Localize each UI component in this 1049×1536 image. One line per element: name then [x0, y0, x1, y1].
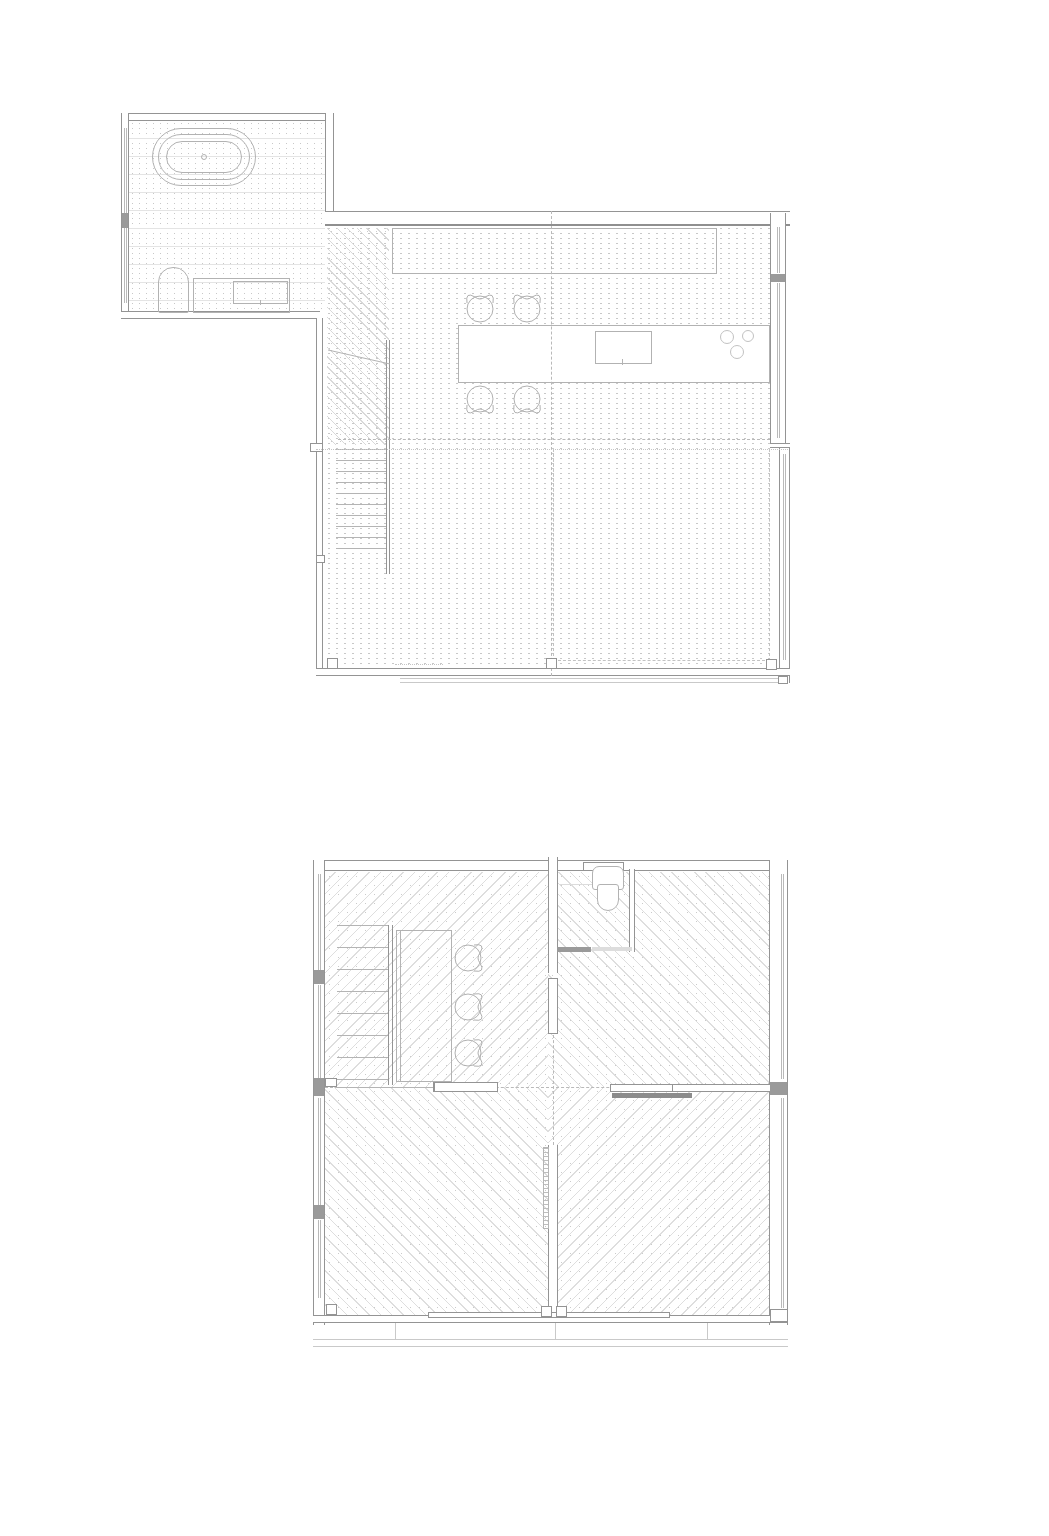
toilet-bowl — [597, 884, 619, 911]
floor-joint-dotted-line — [316, 449, 788, 450]
wall-wc-right — [629, 869, 635, 952]
stair-tread — [337, 925, 388, 926]
sliding-panel-shaded — [612, 1093, 692, 1098]
wall-mullion-left — [316, 555, 325, 563]
window-mullion — [314, 1205, 324, 1219]
stool-icon — [452, 989, 488, 1025]
stair-rail — [386, 340, 390, 574]
stair-tread — [337, 969, 388, 970]
stair-tread — [337, 991, 388, 992]
stool — [509, 383, 545, 419]
drawing-sheet — [0, 0, 1049, 1536]
stair-tread — [337, 1013, 388, 1014]
toilet — [158, 267, 189, 313]
stool — [462, 383, 498, 419]
sink-bowl — [720, 330, 734, 344]
stair-tread — [336, 504, 386, 505]
desk-edge-line — [400, 931, 401, 1081]
stair-tread — [336, 460, 386, 461]
wall-right-glazed — [769, 860, 788, 1325]
window-glazing — [777, 227, 780, 273]
window-mullion — [314, 1078, 324, 1096]
stair-tread — [337, 1057, 388, 1058]
deck-post — [555, 1323, 556, 1339]
kitchen-wall-counter — [392, 228, 717, 274]
stair-tread — [336, 537, 386, 538]
wc-door-threshold — [592, 947, 632, 951]
wall-partition-lower — [548, 1145, 558, 1315]
wall-bathroom-right — [325, 113, 334, 213]
stair-void-hatch — [327, 228, 389, 445]
column — [541, 1306, 552, 1317]
stair-tread — [336, 526, 386, 527]
wall-partition-upper — [548, 857, 558, 973]
wall-left-glazed — [313, 860, 325, 1325]
deck-edge — [313, 1339, 788, 1347]
column — [326, 1304, 337, 1315]
wall-corner-step — [770, 1309, 788, 1322]
sill-end-cap — [778, 676, 788, 684]
stair-tread — [337, 1079, 388, 1080]
window-glazing — [318, 874, 321, 970]
wall-right-upper-glazed — [770, 213, 786, 445]
stair-tread — [337, 1035, 388, 1036]
wall-main-bottom — [316, 668, 790, 676]
column — [766, 659, 777, 670]
window-glazing — [318, 1220, 321, 1298]
column — [556, 1306, 567, 1317]
stool — [509, 289, 545, 325]
floor-upper-right — [548, 872, 769, 1087]
stool-icon — [509, 289, 545, 325]
threshold-dotted-line — [395, 664, 443, 665]
stool-icon — [462, 383, 498, 419]
stair-tread — [337, 947, 388, 948]
window-glazing — [777, 283, 780, 438]
wc-shelf-line — [560, 884, 592, 885]
wall-bracket-left — [325, 1078, 337, 1087]
window-glazing — [783, 454, 786, 660]
stool-icon — [509, 383, 545, 419]
overhead-dash-line — [338, 439, 770, 440]
window-glazing — [781, 1098, 784, 1308]
stair-tread — [336, 471, 386, 472]
stool — [452, 940, 488, 976]
stool — [462, 289, 498, 325]
sliding-panel-right — [610, 1084, 673, 1092]
window-mullion — [122, 213, 128, 228]
stool — [452, 989, 488, 1025]
column — [546, 658, 557, 669]
void-dashed-outline — [553, 449, 770, 661]
deck-post — [395, 1323, 396, 1339]
stair-tread — [336, 515, 386, 516]
column — [327, 658, 338, 669]
window-glazing — [124, 128, 127, 213]
sink-bowl — [730, 345, 744, 359]
wall-bathroom-left-glazed — [121, 113, 129, 318]
wardrobe-desk — [396, 930, 452, 1082]
floor-lower-right — [548, 1087, 769, 1315]
wall-partition-stub — [548, 978, 558, 1034]
stool-icon — [452, 940, 488, 976]
stool — [452, 1035, 488, 1071]
window-sill-line — [400, 678, 788, 683]
cooktop — [595, 331, 652, 364]
stair-tread — [336, 548, 386, 549]
wall-main-top — [325, 211, 790, 226]
sink-bowl — [742, 330, 754, 342]
bathtub-drain — [201, 154, 207, 160]
basin-tap-mark — [260, 300, 261, 305]
wall-wc-bottom — [557, 947, 591, 952]
grid-line-vertical — [551, 211, 552, 676]
wall-main-left — [316, 318, 323, 672]
bathtub-outer — [152, 128, 256, 186]
grid-line-vertical — [553, 1035, 554, 1145]
window-mullion — [314, 970, 324, 984]
mid-wall-right — [672, 1084, 770, 1092]
stair-tread — [336, 482, 386, 483]
sliding-panel-left — [433, 1082, 498, 1092]
window-glazing — [124, 228, 127, 303]
stair-break-line — [328, 346, 390, 366]
stair-tread — [336, 493, 386, 494]
wall-bathroom-top — [121, 113, 334, 121]
stool-icon — [452, 1035, 488, 1071]
cooktop-mark — [622, 359, 623, 365]
wall-mullion-left — [310, 443, 323, 452]
floor-lower-left — [325, 1087, 548, 1315]
window-mullion — [771, 274, 785, 282]
stool-icon — [462, 289, 498, 325]
window-glazing — [781, 874, 784, 1079]
mid-wall-line — [337, 1087, 433, 1088]
deck-post — [707, 1323, 708, 1339]
window-mullion — [770, 1082, 787, 1095]
window-glazing — [318, 985, 321, 1078]
pocket-door-leaf — [543, 1147, 549, 1229]
wall-right-lower-glazed — [779, 448, 790, 683]
window-glazing — [318, 1098, 321, 1205]
stair-rail — [388, 925, 393, 1085]
